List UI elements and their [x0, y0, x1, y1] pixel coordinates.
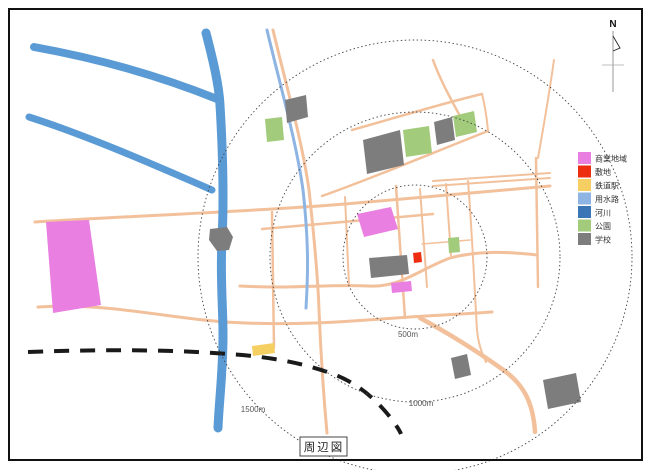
school-left-blob [209, 227, 233, 251]
park-row-1 [403, 126, 432, 157]
school-topleft [285, 95, 308, 123]
legend-swatch-commercial [578, 152, 591, 164]
ring-label-1000m: 1000m [409, 399, 434, 408]
legend-item-school: 学校 [578, 233, 611, 245]
legend-label-school: 学校 [595, 235, 611, 245]
legend-label-canal: 用水路 [595, 194, 619, 204]
commercial-area-large [46, 220, 101, 313]
park-center [448, 237, 460, 253]
legend-label-station: 鉄道駅 [595, 181, 619, 191]
legend-swatch-canal [578, 193, 591, 205]
legend-item-canal: 用水路 [578, 193, 619, 205]
north-arrow: N [602, 19, 624, 92]
legend-swatch-school [578, 233, 591, 245]
legend-item-station: 鉄道駅 [578, 179, 619, 191]
road-top-v2 [538, 60, 554, 158]
ring-label-500m: 500m [398, 330, 418, 339]
map-svg: 500m 1000m 1500m N 商業地域 敷地 鉄道駅 用水路 河川 [0, 0, 650, 470]
road-grid-h-short [422, 240, 470, 244]
road-right-vertical [536, 158, 538, 287]
river-branch-lower [29, 117, 212, 190]
river-branch-upper [34, 47, 217, 99]
site-parcel [413, 252, 422, 263]
surrounding-area-map: 500m 1000m 1500m N 商業地域 敷地 鉄道駅 用水路 河川 [0, 0, 650, 470]
school-center [369, 255, 409, 278]
commercial-area-center [357, 207, 398, 237]
park-row-2 [453, 111, 477, 137]
school-row-small [434, 117, 455, 145]
school-bottomright-small [451, 354, 471, 379]
legend-label-site: 敷地 [595, 167, 611, 177]
page-title: 周辺図 [304, 441, 345, 454]
commercial-area-small [391, 281, 412, 293]
road-grid-v1 [345, 197, 349, 286]
legend-label-commercial: 商業地域 [595, 154, 627, 164]
road-grid-v5 [468, 181, 486, 362]
legend-swatch-river [578, 206, 591, 218]
legend-swatch-site [578, 166, 591, 178]
park-topleft [265, 117, 284, 142]
legend: 商業地域 敷地 鉄道駅 用水路 河川 公園 学校 [578, 152, 627, 245]
road-parallel [262, 214, 433, 229]
legend-swatch-station [578, 179, 591, 191]
road-top-v1 [433, 60, 461, 118]
road-main-ew [35, 186, 550, 222]
legend-item-park: 公園 [578, 220, 611, 232]
railway-station-block [252, 343, 275, 356]
north-arrow-label: N [609, 19, 616, 30]
road-grid-v2 [396, 186, 405, 318]
legend-label-park: 公園 [595, 222, 611, 231]
legend-swatch-park [578, 220, 591, 232]
road-band-right [482, 94, 488, 131]
title-box: 周辺図 [300, 437, 347, 456]
road-network [35, 30, 554, 433]
north-arrow-flag-icon [613, 36, 620, 51]
legend-item-site: 敷地 [578, 166, 611, 178]
legend-item-river: 河川 [578, 206, 611, 218]
legend-item-commercial: 商業地域 [578, 152, 627, 164]
ring-label-1500m: 1500m [241, 405, 266, 414]
legend-label-river: 河川 [595, 208, 611, 218]
